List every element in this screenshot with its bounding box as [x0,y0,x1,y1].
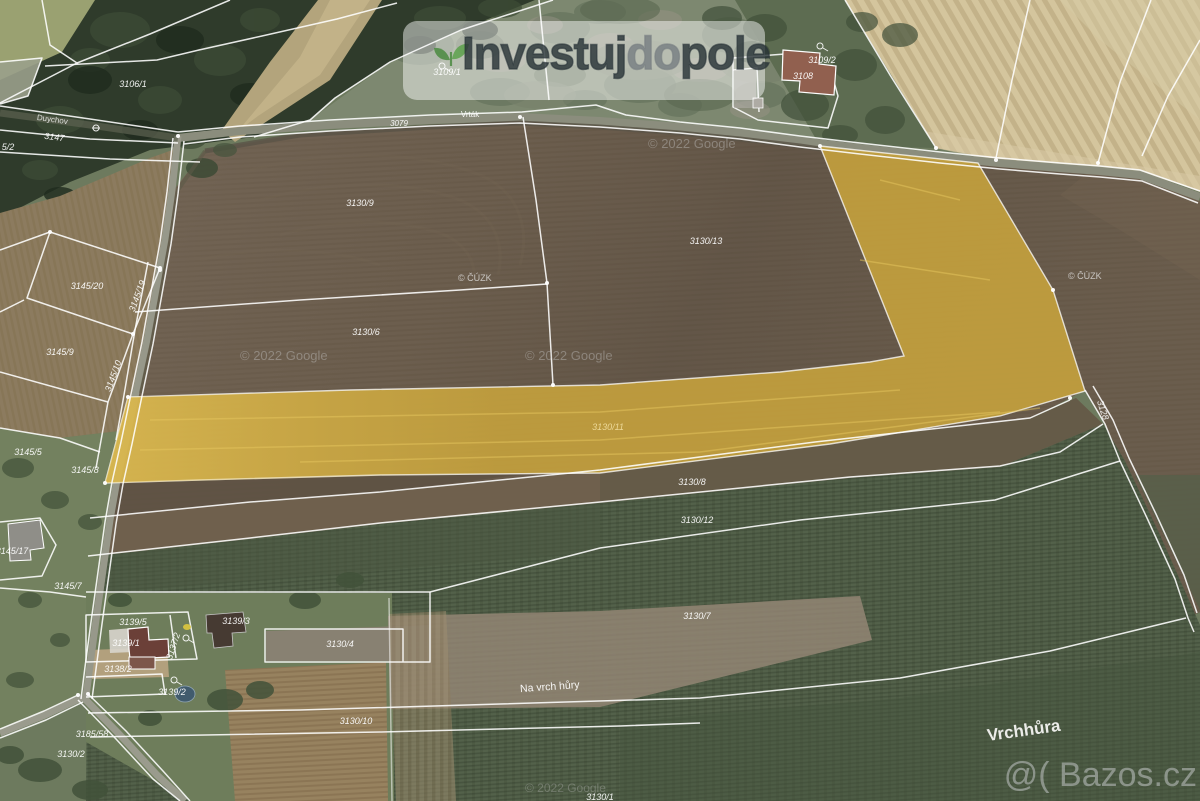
svg-text:3145/5: 3145/5 [14,447,43,457]
svg-text:3130/13: 3130/13 [690,236,723,246]
svg-text:3130/2: 3130/2 [57,749,85,759]
svg-text:3130/12: 3130/12 [681,515,714,525]
svg-text:3130/11: 3130/11 [592,422,624,432]
svg-text:© 2022 Google: © 2022 Google [240,348,328,363]
svg-text:Vrták: Vrták [461,110,480,119]
svg-text:3130/8: 3130/8 [678,477,706,487]
svg-text:© ČÚZK: © ČÚZK [1068,271,1102,281]
svg-text:3130/7: 3130/7 [683,611,712,621]
svg-text:3145/7: 3145/7 [54,581,83,591]
svg-text:3079: 3079 [390,119,408,128]
svg-text:3130/9: 3130/9 [346,198,374,208]
svg-text:3139/5: 3139/5 [119,617,148,627]
svg-text:© 2022 Google: © 2022 Google [525,348,613,363]
svg-text:3139/1: 3139/1 [112,638,140,648]
svg-text:3130/4: 3130/4 [326,639,354,649]
svg-text:3108: 3108 [793,71,813,81]
svg-text:3139/2: 3139/2 [158,687,186,697]
svg-text:5/2: 5/2 [2,142,15,152]
svg-text:© 2022 Google: © 2022 Google [525,781,606,795]
svg-text:© ČÚZK: © ČÚZK [458,273,492,283]
svg-text:3145/20: 3145/20 [71,281,104,291]
svg-text:3138/2: 3138/2 [104,664,132,674]
svg-text:3145/17: 3145/17 [0,546,29,556]
svg-text:3109/2: 3109/2 [808,55,836,65]
svg-text:Investujdopole: Investujdopole [462,27,770,79]
svg-text:3139/3: 3139/3 [222,616,250,626]
svg-text:3106/1: 3106/1 [119,79,147,89]
svg-text:3145/8: 3145/8 [71,465,99,475]
svg-text:@( Bazos.cz: @( Bazos.cz [1004,756,1197,794]
svg-text:3185/58: 3185/58 [76,729,109,739]
svg-text:© 2022 Google: © 2022 Google [648,136,736,151]
svg-text:3145/9: 3145/9 [46,347,74,357]
svg-text:3130/10: 3130/10 [340,716,373,726]
svg-text:3130/6: 3130/6 [352,327,380,337]
